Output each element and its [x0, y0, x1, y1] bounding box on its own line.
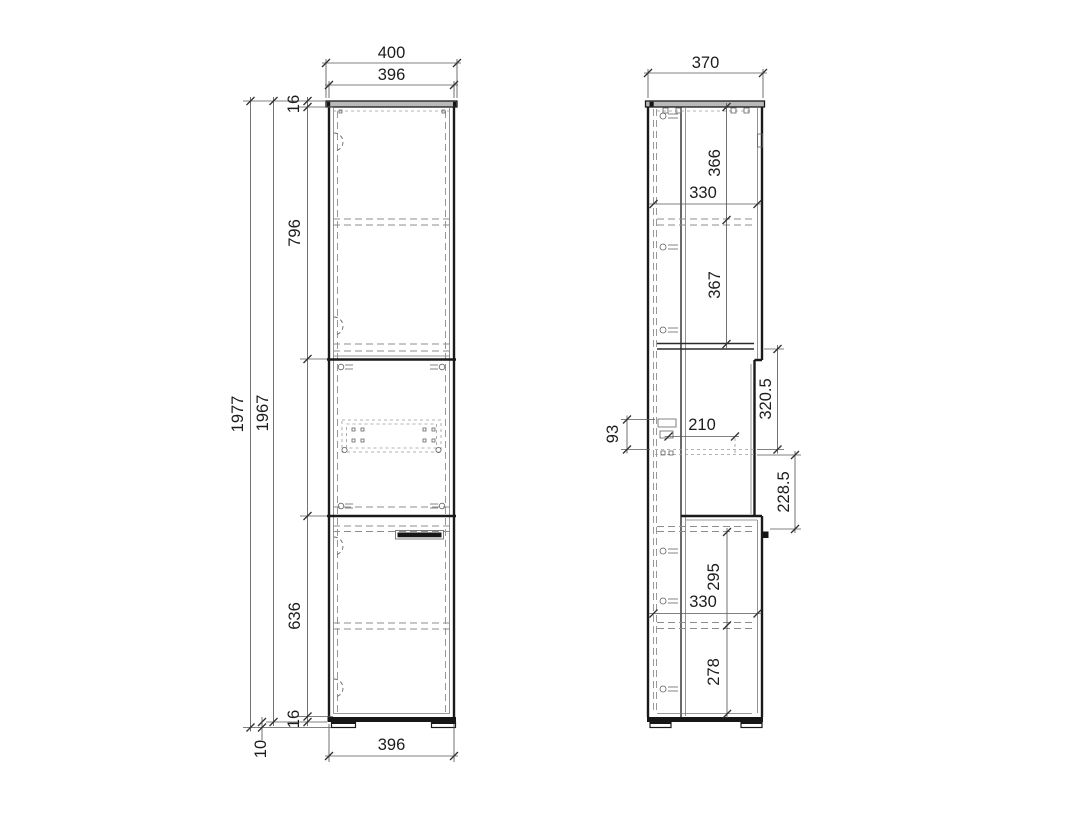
dim-runner-to-handle: 228.5 [775, 471, 793, 512]
side-bottom-panel [647, 717, 763, 722]
dim-overall-width: 400 [378, 44, 406, 62]
front-dimension-lines [243, 59, 461, 762]
front-drawer-runner-outline [342, 420, 441, 453]
dim-upper-door-height: 796 [286, 219, 304, 247]
technical-drawing-canvas: 400 396 16 796 1977 1967 636 16 10 396 [0, 0, 1089, 816]
front-dimension-labels: 400 396 16 796 1977 1967 636 16 10 396 [229, 44, 405, 758]
dim-bottom-panel-thickness: 16 [285, 710, 303, 728]
dim-overall-height: 1977 [229, 396, 247, 433]
dim-plinth-height: 10 [252, 740, 270, 758]
front-feet [332, 722, 456, 728]
front-view: 400 396 16 796 1977 1967 636 16 10 396 [229, 44, 461, 762]
dim-lower-shelf-to-bottom: 278 [705, 658, 723, 686]
front-carcass [326, 101, 457, 722]
dim-fixed-panel-to-runner: 320.5 [757, 378, 775, 419]
dim-upper-shelf-depth: 330 [689, 184, 717, 202]
dim-top-to-upper-shelf: 366 [706, 149, 724, 177]
dim-lower-shelf-depth: 330 [689, 593, 717, 611]
dim-carcass-width: 396 [378, 66, 406, 84]
dim-top-panel-thickness: 16 [285, 95, 303, 113]
side-door-handle [763, 532, 769, 539]
dim-upper-shelf-to-fixed-panel: 367 [706, 271, 724, 299]
side-top-panel [646, 101, 765, 107]
dim-overall-depth: 370 [692, 54, 720, 72]
dim-handle-to-lower-shelf: 295 [705, 563, 723, 591]
dim-runner-length: 210 [688, 416, 716, 434]
front-bottom-panel [328, 717, 457, 722]
front-top-panel [326, 101, 457, 107]
drawing-svg: 400 396 16 796 1977 1967 636 16 10 396 [0, 0, 1089, 816]
dim-runner-bracket-height: 93 [604, 425, 622, 443]
side-dimension-labels: 370 366 330 367 320.5 210 93 228.5 295 3… [604, 54, 793, 686]
side-feet [650, 722, 762, 728]
dim-carcass-height: 1967 [254, 395, 272, 432]
front-cam-fittings [338, 364, 445, 509]
hinge-arc-icons [334, 133, 343, 697]
dim-carcass-width-bottom: 396 [378, 736, 406, 754]
dim-lower-door-height: 636 [286, 602, 304, 630]
side-view: 370 366 330 367 320.5 210 93 228.5 295 3… [604, 54, 801, 728]
